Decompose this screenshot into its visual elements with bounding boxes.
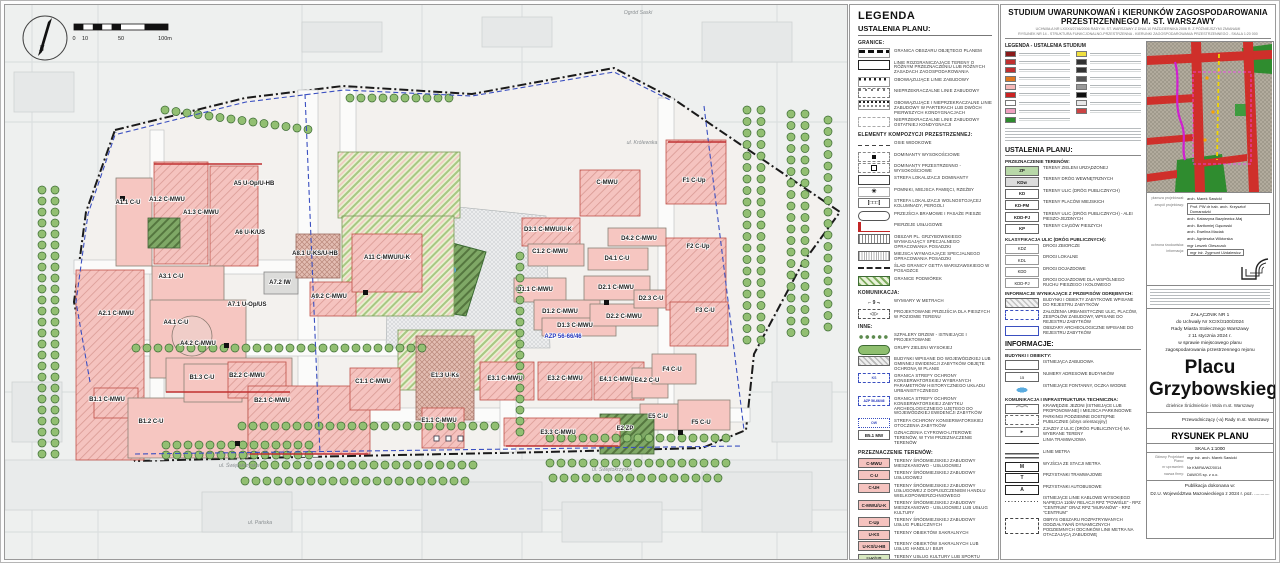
drawing-title-box: RYSUNEK PLANU SKALA 1:1000 Główny Projek… — [1147, 429, 1273, 481]
legend-swatch — [858, 77, 890, 87]
legend-swatch — [858, 100, 890, 110]
legend-swatch: A — [1005, 485, 1039, 495]
studium-legend-row — [1076, 108, 1141, 114]
legend-swatch: B5.1 MW — [858, 430, 890, 440]
legend-row: ŚLAD GRANICY GETTA WARSZAWSKIEGO W POSAD… — [858, 263, 992, 274]
scale-tick-10: 10 — [82, 36, 88, 42]
legend-swatch — [1005, 438, 1039, 448]
studium-legend-smalltext — [1090, 61, 1141, 64]
legend-row-label: TERENY ŚRÓDMIEJSKIEJ ZABUDOWY MIESZKANIO… — [894, 500, 992, 516]
annex-line: w sprawie miejscowego planu — [1149, 341, 1271, 348]
studium-legend-smalltext — [1019, 118, 1070, 121]
legend-row-label: SZPALERY DRZEW - ISTNIEJĄCE I PROJEKTOWA… — [894, 332, 992, 343]
legend-row: APRZYSTANKI AUTOBUSOWE — [1005, 485, 1141, 495]
zone-label: F3 C-U — [695, 308, 714, 314]
legend-swatch — [1005, 415, 1039, 425]
legend-swatch — [1005, 384, 1039, 394]
legend-swatch: KDD — [1005, 267, 1039, 277]
legend-row: KDDDROGI DOJAZDOWE — [1005, 267, 1141, 277]
legend-row-label: PARKINGI PODZIEMNE DOSTĘPNE PUBLICZNIE (… — [1043, 415, 1141, 425]
legend-row-label: GRANICA STREFY OCHRONY KONSERWATORSKIEJ … — [894, 396, 992, 417]
zone-label: E3.1 C-MWU — [487, 376, 522, 382]
drawing-credit-row: nazwa firmy:DAWOS sp. z o.o. — [1150, 472, 1270, 477]
legend-row: OWSTREFA OCHRONY KONSERWATORSKIEJ OTOCZE… — [858, 418, 992, 429]
studium-legend-column — [1005, 51, 1070, 125]
plan-name-line-1: Placu — [1149, 358, 1271, 377]
legend-swatch — [858, 187, 890, 197]
legend-row: TPRZYSTANKI TRAMWAJOWE — [1005, 473, 1141, 483]
legend-row-label: TERENY OBIEKTÓW SAKRALNYCH LUB USŁUG HAN… — [894, 541, 992, 552]
legend-row-label: LINIA TRAMWAJOWA — [1043, 438, 1086, 443]
legend-swatch: U-KS — [858, 530, 890, 540]
legend-row: KDD-PJDROGI DOJAZDOWE DLA WSPÓLNEGO RUCH… — [1005, 278, 1141, 288]
zone-label: B1.2 C-U — [138, 419, 163, 425]
legend-swatch — [1005, 326, 1039, 336]
legend-swatch — [858, 276, 890, 286]
legend-swatch: U-KS/U-HB — [858, 541, 890, 551]
studium-legend-smalltext — [1090, 85, 1141, 88]
legend-row: OBSZAR PL. GRZYBOWSKIEGO WYMAGAJĄCY SPEC… — [858, 234, 992, 250]
zone-label: A1.3 C-MWU — [183, 210, 219, 216]
zone-label: B1.3 C-U — [189, 375, 214, 381]
legend-swatch — [1005, 404, 1039, 414]
legend-row-label: DROGI ZBIORCZE — [1043, 244, 1080, 249]
legend-row-label: GRANICE PODWÓREK — [894, 276, 942, 282]
legend-row: KDTERENY ULIC (DRÓG PUBLICZNYCH) — [1005, 189, 1141, 199]
studium-legend-smalltext — [1019, 61, 1070, 64]
legend-row: SZPALERY DRZEW - ISTNIEJĄCE I PROJEKTOWA… — [858, 332, 992, 343]
studium-legend-row — [1005, 92, 1070, 98]
street-label: ul. Świętokrzyska — [592, 466, 632, 473]
legend-row: C-MWU/U-KTERENY ŚRÓDMIEJSKIEJ ZABUDOWY M… — [858, 500, 992, 516]
legend-row-label: ISTNIEJĄCA ZABUDOWA — [1043, 360, 1093, 365]
studium-subtitle-1: UCHWAŁA NR LXXXII/2746/2006 RADY M. ST. … — [1005, 27, 1271, 31]
studium-legend-title: LEGENDA - USTALENIA STUDIUM — [1005, 43, 1141, 49]
legend-swatch — [858, 211, 890, 221]
zone-label: A1.1 C-U — [115, 200, 140, 206]
studium-legend-chip — [1076, 51, 1087, 57]
drawing-credit-row: Główny Projektant Planu:mgr inż. arch. M… — [1150, 455, 1270, 463]
legend-row-label: STREFA LOKALIZACJI WOLNOSTOJĄCEJ KOLUMNA… — [894, 198, 992, 209]
studium-legend-row — [1076, 51, 1141, 57]
studium-legend-row — [1076, 100, 1141, 106]
legend-row: BUDYNKI WPISANE DO WOJEWÓDZKIEJ LUB GMIN… — [858, 356, 992, 372]
street-label: ul. Pańska — [248, 520, 272, 526]
legend-row-label: ISTNIEJĄCE FONTANNY, OCZKA WODNE — [1043, 384, 1126, 389]
zone-label: E5 C-U — [648, 414, 668, 420]
legend-section-header: ELEMENTY KOMPOZYCJI PRZESTRZENNEJ: — [858, 132, 992, 138]
legend-row-label: STREFA LOKALIZACJI DOMINANTY — [894, 175, 968, 181]
studium-legend-smalltext — [1090, 53, 1141, 56]
legend-swatch — [858, 309, 890, 319]
studium-legend-smalltext — [1090, 102, 1141, 105]
annex-line: Rady Miasta Stołecznego Warszawy — [1149, 327, 1271, 334]
zone-label: E3.3 C-MWU — [540, 430, 575, 436]
zone-parcel — [528, 244, 584, 266]
legend-row-label: TERENY OBIEKTÓW SAKRALNYCH — [894, 530, 969, 536]
zone-label: D1.3 C-MWU — [557, 323, 593, 329]
legend-row: ISTNIEJĄCE FONTANNY, OCZKA WODNE — [1005, 384, 1141, 394]
studium-legend-chip — [1005, 84, 1016, 90]
zone-label: A5 U-Op/U-HB — [234, 181, 275, 187]
zone-label: C1.2 C-MWU — [532, 249, 568, 255]
studium-legend-chip — [1005, 92, 1016, 98]
zone-label: A11 C-MWU/U-K — [364, 255, 411, 261]
studium-legend-row — [1005, 59, 1070, 65]
council-chair-line: Przewodniczący (-a) Rady m.st. Warszawy — [1147, 413, 1273, 429]
legend-row-label: TERENY ŚRÓDMIEJSKIEJ ZABUDOWY USŁUG PUBL… — [894, 517, 992, 528]
legend-row-label: DOMINANTY WYSOKOŚCIOWE — [894, 152, 960, 158]
zone-label: D3.1 C-MWU/U-K — [524, 227, 573, 233]
legend-swatch: KDw — [1005, 177, 1039, 187]
legend-swatch — [858, 356, 890, 366]
annex-line: do Uchwały Nr XCIX/3100/2024 — [1149, 320, 1271, 327]
legend-swatch — [1005, 298, 1039, 308]
legend-swatch — [858, 298, 890, 308]
legend-row: GRANICA OBSZARU OBJĘTEGO PLANEM — [858, 48, 992, 58]
legend-row-label: OZNACZENIA CYFROWO-LITEROWE TERENÓW, W T… — [894, 430, 992, 446]
legend-row-label: BUDYNKI WPISANE DO WOJEWÓDZKIEJ LUB GMIN… — [894, 356, 992, 372]
panel-section-header: USTALENIA PLANU: — [1005, 147, 1141, 156]
zone-label: F1 C-Up — [683, 178, 706, 184]
legend-row-label: OBOWIĄZUJĄCE I NIEPRZEKRACZALNE LINIE ZA… — [894, 100, 992, 116]
legend-row: NIEPRZEKRACZALNE LINIE ZABUDOWY — [858, 88, 992, 98]
legend-row-label: LINIE METRA — [1043, 450, 1070, 455]
scale-tick-0: 0 — [72, 36, 75, 42]
legend-row: KDwTERENY DRÓG WEWNĘTRZNYCH — [1005, 177, 1141, 187]
legend-swatch: T — [1005, 473, 1039, 483]
zone-parcel — [116, 178, 152, 266]
studium-legend-smalltext — [1019, 85, 1070, 88]
studium-legend-row — [1005, 108, 1070, 114]
studium-legend-row — [1076, 76, 1141, 82]
height-dominant-marker — [363, 290, 368, 295]
plan-settings-sections: USTALENIA PLANU:PRZEZNACZENIE TERENÓW:ZP… — [1005, 147, 1141, 538]
metro-exit-marker — [458, 436, 463, 441]
designer-row: informacja:mgr inż. Zygmunt Użdalewicz — [1150, 249, 1270, 256]
legend-row-label: BUDYNKI I OBIEKTY ZABYTKOWE WPISANE DO R… — [1043, 298, 1141, 308]
designer-row: arch. Agnieszka Wiktorska — [1150, 236, 1270, 241]
legal-note-smallprint — [1147, 286, 1273, 309]
panel-section-header: INFORMACJE WYNIKAJĄCE Z PRZEPISÓW ODRĘBN… — [1005, 291, 1141, 296]
studium-legend-smalltext — [1019, 53, 1070, 56]
studium-legend-smalltext — [1019, 93, 1070, 96]
legend-row: GRANICE PODWÓREK — [858, 276, 992, 286]
studium-legend-chip — [1076, 92, 1087, 98]
height-dominant-marker — [604, 300, 609, 305]
zone-label: E2 ZP — [617, 426, 634, 432]
studium-legend-smalltext — [1090, 69, 1141, 72]
legend-row: PROJEKTOWANE PRZEJŚCIA DLA PIESZYCH W PO… — [858, 309, 992, 320]
north-label: N — [38, 44, 45, 53]
legend-row: KD-PMTERENY PLACÓW MIEJSKICH — [1005, 200, 1141, 210]
legend-swatch — [858, 234, 890, 244]
legend-swatch: M — [1005, 462, 1039, 472]
legend-swatch: C-UH — [858, 483, 890, 493]
legend-swatch: OW — [858, 418, 890, 428]
legend-row-label: TERENY DRÓG WEWNĘTRZNYCH — [1043, 177, 1113, 182]
legend-title: LEGENDA — [858, 10, 992, 22]
legend-row-label: TERENY ZIELENI URZĄDZONEJ — [1043, 166, 1108, 171]
publication-label: Publikacja dokonana w: — [1149, 484, 1271, 489]
context-building — [772, 382, 832, 442]
scale-tick-50: 50 — [118, 36, 124, 42]
studium-legend-row — [1076, 67, 1141, 73]
legend-swatch — [1005, 496, 1039, 506]
drawing-title: RYSUNEK PLANU — [1147, 429, 1273, 444]
designer-row: arch. Katarzyna Bazylewicz-Maj — [1150, 216, 1270, 221]
panel-section-header: PRZEZNACZENIE TERENÓW: — [1005, 159, 1141, 164]
studium-legend-row — [1005, 76, 1070, 82]
legend-row-label: ISTNIEJĄCE LINIE KABLOWE WYSOKIEGO NAPIĘ… — [1043, 496, 1141, 516]
legend-swatch — [858, 163, 890, 173]
zone-label: F2 C-Up — [687, 244, 710, 250]
designers-box: plansza projektował:arch. Marek Sawickiz… — [1147, 193, 1273, 286]
context-building — [482, 17, 552, 47]
legend-row: OBOWIĄZUJĄCE LINIE ZABUDOWY — [858, 77, 992, 87]
studium-legend-chip — [1005, 100, 1016, 106]
metro-exit-marker — [446, 436, 451, 441]
legend-row: LINIA TRAMWAJOWA — [1005, 438, 1141, 448]
studium-legend-row — [1076, 59, 1141, 65]
zone-label: C-MWU — [596, 180, 617, 186]
studium-legend-smalltext — [1090, 93, 1141, 96]
plan-map: A1.1 C-UA1.2 C-MWUA1.3 C-MWUA2.1 C-MWUA3… — [5, 5, 847, 559]
zone-label: E1.1 C-MWU — [421, 418, 456, 424]
legend-row-label: WYMIARY W METRACH — [894, 298, 944, 304]
studium-legend-chip — [1076, 100, 1087, 106]
legend-swatch: C-U — [858, 470, 890, 480]
studium-legend-row — [1076, 84, 1141, 90]
legend-row-label: TERENY PLACÓW MIEJSKICH — [1043, 200, 1104, 205]
legend-row: PIERZEJE USŁUGOWE — [858, 222, 992, 232]
panel-section-header: KLASYFIKACJA ULIC (DRÓG PUBLICZNYCH): — [1005, 237, 1141, 242]
legend-row-label: OBSZAR PL. GRZYBOWSKIEGO WYMAGAJĄCY SPEC… — [894, 234, 992, 250]
studium-legend-row — [1005, 84, 1070, 90]
legend-row-label: POMNIKI, MIEJSCA PAMIĘCI, RZEŹBY — [894, 187, 974, 193]
zone-label: A8.1 U-KS/U-HB — [292, 251, 338, 257]
legend-swatch — [858, 60, 890, 70]
legend-row-label: ŚLAD GRANICY GETTA WARSZAWSKIEGO W POSAD… — [894, 263, 992, 274]
studium-legend-row — [1005, 117, 1070, 123]
legend-swatch: KD-PM — [1005, 200, 1039, 210]
legend-row: C-UTERENY ŚRÓDMIEJSKIEJ ZABUDOWY USŁUGOW… — [858, 470, 992, 481]
studium-legend-chip — [1005, 117, 1016, 123]
zone-label: D4.2 C-MWU — [621, 236, 657, 242]
legend-row-label: OBOWIĄZUJĄCE LINIE ZABUDOWY — [894, 77, 969, 83]
legend-row-label: DROGI DOJAZDOWE DLA WSPÓLNEGO RUCHU PIES… — [1043, 278, 1141, 288]
context-building — [302, 22, 382, 52]
zone-label: D2.3 C-U — [638, 296, 663, 302]
zone-parcel — [338, 152, 460, 218]
zone-parcel — [352, 234, 422, 292]
legend-swatch — [858, 117, 890, 127]
legend-row-label: PRZYSTANKI TRAMWAJOWE — [1043, 473, 1102, 478]
legend-row: POMNIKI, MIEJSCA PAMIĘCI, RZEŹBY — [858, 187, 992, 197]
legend-row: KDD-PJTERENY ULIC (DRÓG PUBLICZNYCH) - A… — [1005, 212, 1141, 222]
legend-row-label: TERENY ŚRÓDMIEJSKIEJ ZABUDOWY MIESZKANIO… — [894, 458, 992, 469]
title-panel: STUDIUM UWARUNKOWAŃ i KIERUNKÓW ZAGOSPOD… — [1000, 4, 1276, 560]
legend-subtitle: USTALENIA PLANU: — [858, 24, 992, 36]
districts-line: dzielnice Śródmieście i Wola m.st. Warsz… — [1149, 403, 1271, 408]
legend-row: NIEPRZEKRACZALNE LINIE ZABUDOWY OSTATNIE… — [858, 117, 992, 128]
legend-row-label: TERENY ULIC (DRÓG PUBLICZNYCH) - ALEI PI… — [1043, 212, 1141, 222]
legend-swatch — [858, 48, 890, 58]
panel-section-header: INFORMACJE: — [1005, 341, 1141, 350]
legend-row-label: NUMERY ADRESOWE BUDYNKÓW — [1043, 372, 1114, 377]
legend-row: OBRYS OBSZARU ROZPATRYWANYCH ODDZIAŁYWAŃ… — [1005, 518, 1141, 538]
legend-swatch — [858, 345, 890, 355]
legend-section-header: INNE: — [858, 324, 992, 330]
legend-section-header: PRZEZNACZENIE TERENÓW: — [858, 450, 992, 456]
zone-parcel — [148, 218, 180, 248]
legend-swatch — [858, 175, 890, 185]
legend-swatch: AZP 56-66/46 — [858, 396, 890, 406]
designer-row: plansza projektował:arch. Marek Sawicki — [1150, 196, 1270, 201]
legend-swatch: KDL — [1005, 255, 1039, 265]
legend-swatch — [1005, 518, 1039, 534]
legend-row: KDLDROGI LOKALNE — [1005, 255, 1141, 265]
zone-label: A4.2 C-MWU — [180, 341, 216, 347]
legend-row: C-MWUTERENY ŚRÓDMIEJSKIEJ ZABUDOWY MIESZ… — [858, 458, 992, 469]
height-dominant-marker — [678, 430, 683, 435]
panel-right-column: plansza projektował:arch. Marek Sawickiz… — [1146, 41, 1274, 539]
zone-label: D1.1 C-MWU — [517, 287, 553, 293]
zone-label: A7.2 IW — [269, 280, 291, 286]
zone-label: E1.3 U-Ks — [431, 373, 460, 379]
legend-sections: GRANICE:GRANICA OBSZARU OBJĘTEGO PLANEML… — [858, 40, 992, 560]
legend-row-label: TERENY ŚRÓDMIEJSKIEJ ZABUDOWY USŁUGOWEJ … — [894, 483, 992, 499]
studium-legend — [1005, 51, 1141, 125]
legend-swatch — [858, 332, 890, 342]
legend-swatch — [1005, 450, 1039, 460]
map-sheet: A1.1 C-UA1.2 C-MWUA1.3 C-MWUA2.1 C-MWUA3… — [4, 4, 848, 560]
zone-label: C1.1 C-MWU — [355, 379, 391, 385]
legend-row: U-K/USTERENY USŁUG KULTURY LUB SPORTU — [858, 554, 992, 560]
legend-swatch: ZP — [1005, 166, 1039, 176]
annex-line: ZAŁĄCZNIK NR 1 — [1149, 313, 1271, 320]
studio-logo — [1240, 257, 1270, 281]
studium-legend-chip — [1005, 59, 1016, 65]
studium-legend-smalltext — [1090, 110, 1141, 113]
drawing-scale: SKALA 1:1000 — [1147, 444, 1273, 453]
legend-row: U-KSTERENY OBIEKTÓW SAKRALNYCH — [858, 530, 992, 540]
zone-label: A4.1 C-U — [163, 320, 188, 326]
legend-row-label: KRAWĘDZIE JEZDNI (ISTNIEJĄCE LUB PROPONO… — [1043, 404, 1141, 414]
legend-swatch: C-MWU — [858, 458, 890, 468]
legend-row: DOMINANTY PRZESTRZENNO - WYSOKOŚCIOWE — [858, 163, 992, 174]
designer-row: arch. Ewelina Maciak — [1150, 229, 1270, 234]
legend-row: LINIE METRA — [1005, 450, 1141, 460]
studium-legend-chip — [1005, 67, 1016, 73]
legend-row-label: PIERZEJE USŁUGOWE — [894, 222, 943, 228]
legend-row-label: NIEPRZEKRACZALNE LINIE ZABUDOWY OSTATNIE… — [894, 117, 992, 128]
studium-legend-chip — [1076, 108, 1087, 114]
legend-section-header: KOMUNIKACJA: — [858, 290, 992, 296]
zone-label: A2.1 C-MWU — [98, 311, 134, 317]
legend-row-label: LINIE ROZGRANICZAJĄCE TERENY O RÓŻNYM PR… — [894, 60, 992, 76]
legend-row: C-UHTERENY ŚRÓDMIEJSKIEJ ZABUDOWY USŁUGO… — [858, 483, 992, 499]
legend-row: KDZDROGI ZBIORCZE — [1005, 244, 1141, 254]
zone-label: D1.2 C-MWU — [542, 309, 578, 315]
legend-row-label: OBSZARY ARCHEOLOGICZNE WPISANE DO REJEST… — [1043, 326, 1141, 336]
drawing-credit-row: nr uprawnień:Nr KM/RA/WZ/0014 — [1150, 465, 1270, 470]
legend-swatch: KDD-PJ — [1005, 278, 1039, 288]
legend-row-label: TERENY ŚRÓDMIEJSKIEJ ZABUDOWY USŁUGOWEJ — [894, 470, 992, 481]
zone-label: A9.2 C-MWU — [311, 294, 347, 300]
legend-row: ISTNIEJĄCA ZABUDOWA — [1005, 360, 1141, 370]
legend-row: DOMINANTY WYSOKOŚCIOWE — [858, 152, 992, 162]
plan-name-line-2: Grzybowskiego — [1149, 380, 1271, 399]
legend-row-label: OSIE WIDOKOWE — [894, 140, 932, 146]
legend-swatch: KP — [1005, 224, 1039, 234]
zone-label: B2.1 C-MWU — [254, 398, 290, 404]
legend-row: ZAŁOŻENIA URBANISTYCZNE ULIC, PLACÓW, ZE… — [1005, 310, 1141, 325]
legend-row: GRUPY ZIELENI WYSOKIEJ — [858, 345, 992, 355]
studium-legend-row — [1076, 92, 1141, 98]
legend-row: ISTNIEJĄCE LINIE KABLOWE WYSOKIEGO NAPIĘ… — [1005, 496, 1141, 516]
legend-row: ZJAZDY Z ULIC (DRÓG PUBLICZNYCH) NA WYBR… — [1005, 427, 1141, 437]
legend-swatch — [858, 251, 890, 261]
studium-legend-chip — [1005, 76, 1016, 82]
legend-row: OBOWIĄZUJĄCE I NIEPRZEKRACZALNE LINIE ZA… — [858, 100, 992, 116]
legend-row-label: OBRYS OBSZARU ROZPATRYWANYCH ODDZIAŁYWAŃ… — [1043, 518, 1141, 538]
annex-line: z 11 stycznia 2024 r. — [1149, 334, 1271, 341]
legend-row-label: TERENY USŁUG KULTURY LUB SPORTU — [894, 554, 980, 560]
studium-legend-chip — [1076, 84, 1087, 90]
zone-label: A6 U-K/US — [235, 230, 265, 236]
legend-swatch — [858, 198, 890, 208]
studium-legend-chip — [1005, 51, 1016, 57]
studium-legend-chip — [1005, 108, 1016, 114]
height-dominant-marker — [235, 441, 240, 446]
legend-row: PRZEJŚCIA BRAMOWE I PASAŻE PIESZE — [858, 211, 992, 221]
studium-legend-smalltext — [1019, 102, 1070, 105]
zone-label: E3.2 C-MWU — [547, 376, 582, 382]
legend-swatch — [1005, 310, 1039, 320]
legend-row: STREFA LOKALIZACJI WOLNOSTOJĄCEJ KOLUMNA… — [858, 198, 992, 209]
legend-row: ZPTERENY ZIELENI URZĄDZONEJ — [1005, 166, 1141, 176]
zone-label: AZP 56-66/46 — [544, 334, 582, 340]
legend-row-label: NIEPRZEKRACZALNE LINIE ZABUDOWY — [894, 88, 979, 94]
legend-row: U-KS/U-HBTERENY OBIEKTÓW SAKRALNYCH LUB … — [858, 541, 992, 552]
legend-row: C-UpTERENY ŚRÓDMIEJSKIEJ ZABUDOWY USŁUG … — [858, 517, 992, 528]
zone-parcel — [350, 368, 400, 410]
zone-label: D2.2 C-MWU — [606, 314, 642, 320]
plan-map-svg: A1.1 C-UA1.2 C-MWUA1.3 C-MWUA2.1 C-MWUA3… — [5, 5, 848, 560]
zone-parcel — [580, 170, 640, 216]
metro-exit-marker — [434, 436, 439, 441]
legend-row-label: TERENY CIĄGÓW PIESZYCH — [1043, 224, 1102, 229]
panel-section-header: BUDYNKI I OBIEKTY: — [1005, 353, 1141, 358]
zone-parcel — [666, 140, 726, 204]
legend-swatch — [858, 152, 890, 162]
designer-row: arch. Bartłomiej Gąsowski — [1150, 223, 1270, 228]
legend-swatch — [1005, 360, 1039, 370]
legend-swatch — [1005, 427, 1039, 437]
legend-swatch: KD — [1005, 189, 1039, 199]
legend-row-label: PRZEJŚCIA BRAMOWE I PASAŻE PIESZE — [894, 211, 981, 217]
annex-line: zagospodarowania przestrzennego rejonu — [1149, 348, 1271, 355]
legend-row: 15NUMERY ADRESOWE BUDYNKÓW — [1005, 372, 1141, 382]
legend-row: WYMIARY W METRACH — [858, 298, 992, 308]
context-building — [422, 482, 542, 532]
legend-swatch: KS — [858, 373, 890, 383]
panel-section-header: KOMUNIKACJA I INFRASTRUKTURA TECHNICZNA: — [1005, 397, 1141, 402]
legend-row-label: GRANICA OBSZARU OBJĘTEGO PLANEM — [894, 48, 982, 54]
legend-section-header: GRANICE: — [858, 40, 992, 46]
zone-label: E4.1 C-MWU — [599, 377, 634, 383]
